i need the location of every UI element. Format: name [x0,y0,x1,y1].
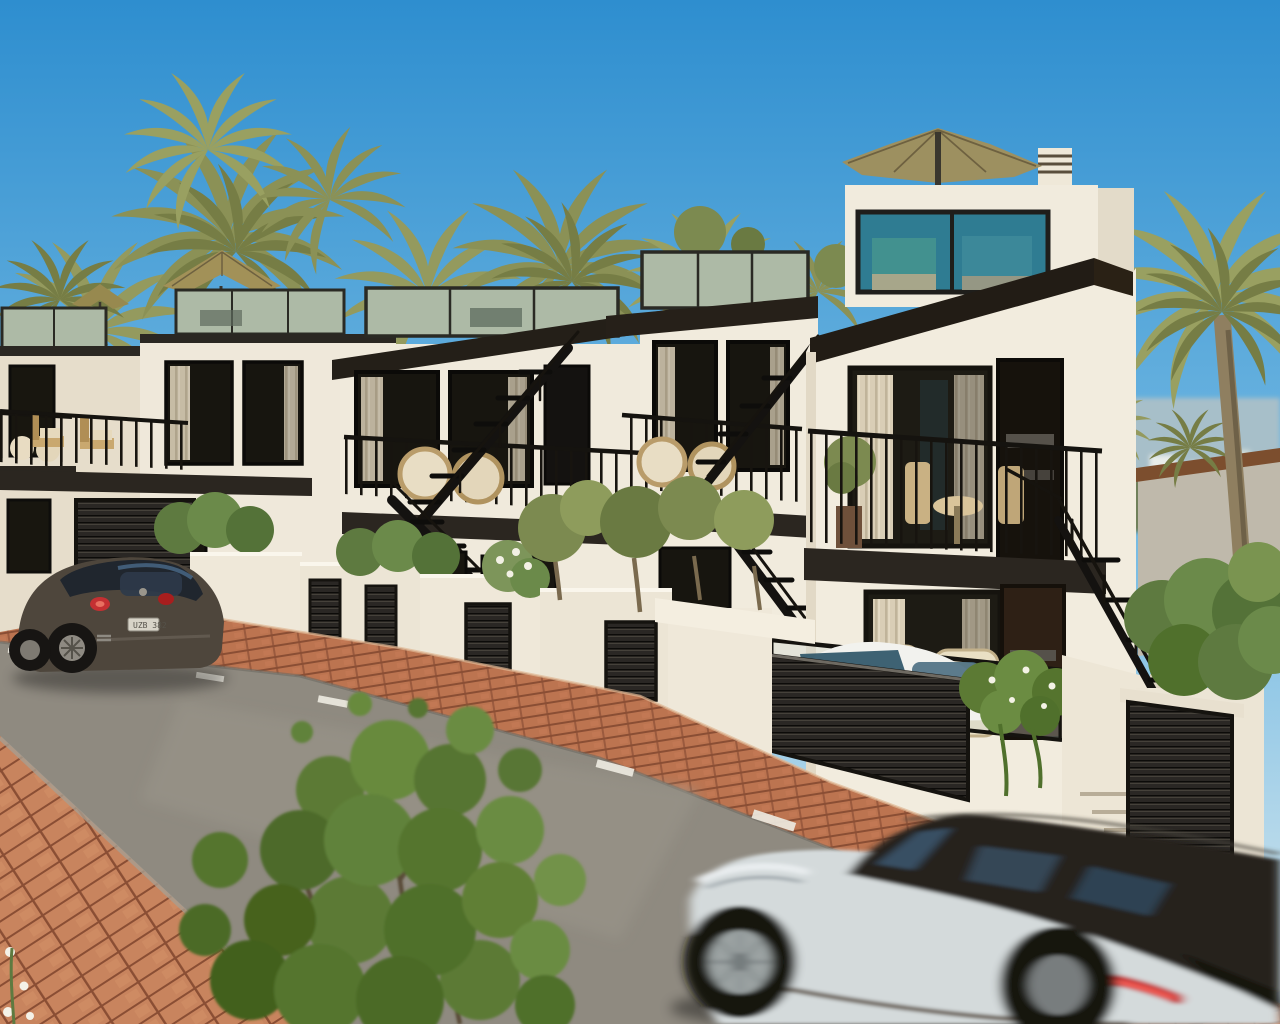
vw-badge-icon [139,588,147,596]
chimney [1038,148,1072,188]
scene-canvas: UZB 382 [0,0,1280,1024]
architectural-render-scene: UZB 382 [0,0,1280,1024]
utility-door [310,580,340,640]
second-floor [804,360,1106,594]
license-plate-text: UZB 382 [133,621,167,630]
sun-lounger [200,310,242,326]
rear-window [120,572,182,596]
window [8,500,50,572]
rooftop-tree [674,206,726,258]
sun-lounger [470,308,522,327]
utility-door [606,622,656,700]
taillight [158,593,174,605]
utility-door [366,586,396,648]
